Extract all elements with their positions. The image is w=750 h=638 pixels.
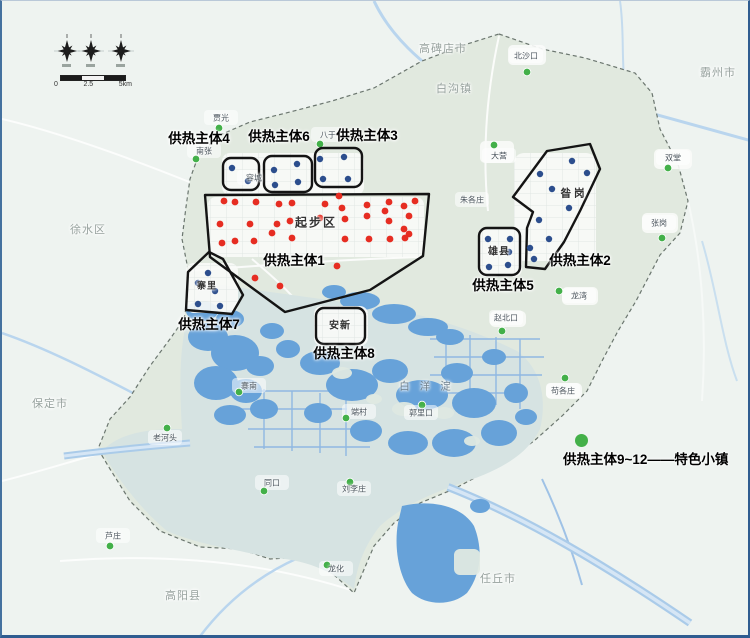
blue-heat-source-dot xyxy=(320,176,326,182)
blue-heat-source-dot xyxy=(569,158,575,164)
place-patch xyxy=(656,150,690,165)
red-heat-source-dot xyxy=(401,226,408,233)
red-heat-source-dot xyxy=(406,213,413,220)
red-heat-source-dot xyxy=(253,199,260,206)
scale-segment xyxy=(82,76,103,80)
blue-heat-source-dot xyxy=(229,165,235,171)
blue-heat-source-dot xyxy=(531,256,537,262)
blue-heat-source-dot xyxy=(549,186,555,192)
blue-heat-source-dot xyxy=(536,217,542,223)
blue-heat-source-dot xyxy=(584,170,590,176)
scale-label-25: 2.5 xyxy=(83,81,93,88)
blue-heat-source-dot xyxy=(507,236,513,242)
red-heat-source-dot xyxy=(339,205,346,212)
red-heat-source-dot xyxy=(274,221,281,228)
compass-block: 0 2.5 5km xyxy=(46,29,166,93)
blue-heat-source-dot xyxy=(537,171,543,177)
town-green-dot xyxy=(342,414,350,422)
blue-heat-source-dot xyxy=(195,280,201,286)
blue-heat-source-dot xyxy=(546,236,552,242)
place-patch xyxy=(148,430,182,445)
red-heat-source-dot xyxy=(232,238,239,245)
red-heat-source-dot xyxy=(402,235,409,242)
scale-segment xyxy=(61,76,82,80)
town-green-dot xyxy=(658,234,666,242)
place-patch xyxy=(562,288,596,303)
town-green-dot xyxy=(561,374,569,382)
red-heat-source-dot xyxy=(277,283,284,290)
blue-heat-source-dot xyxy=(245,178,251,184)
red-heat-source-dot xyxy=(221,198,228,205)
blue-heat-source-dot xyxy=(217,303,223,309)
red-heat-source-dot xyxy=(252,275,259,282)
place-patch xyxy=(482,148,516,163)
place-patch xyxy=(237,170,271,185)
place-patch xyxy=(455,192,489,207)
red-heat-source-dot xyxy=(276,201,283,208)
town-green-dot xyxy=(106,542,114,550)
red-heat-source-dot xyxy=(342,236,349,243)
red-heat-source-dot xyxy=(317,215,324,222)
red-heat-source-dot xyxy=(322,201,329,208)
red-heat-source-dot xyxy=(289,200,296,207)
red-heat-source-dot xyxy=(387,236,394,243)
scale-labels: 0 2.5 5km xyxy=(54,81,132,88)
red-heat-source-dot xyxy=(412,198,419,205)
town-green-dot xyxy=(260,487,268,495)
town-green-dot xyxy=(664,164,672,172)
red-heat-source-dot xyxy=(364,213,371,220)
place-patch xyxy=(546,383,580,398)
legend: 供热主体9~12——特色小镇 xyxy=(563,448,728,469)
blue-heat-source-dot xyxy=(506,249,512,255)
blue-heat-source-dot xyxy=(212,288,218,294)
blue-heat-source-dot xyxy=(294,161,300,167)
xiongan-heating-map-figure: 贾光北沙口南张八于容城大营双堂朱各庄张岗龙湾赵北口苟各庄端村郭里口寨南同口刘李庄… xyxy=(0,0,750,638)
town-green-dot xyxy=(418,401,426,409)
town-green-dot xyxy=(215,124,223,132)
town-green-dot xyxy=(523,68,531,76)
red-heat-source-dot xyxy=(287,218,294,225)
red-heat-source-dot xyxy=(269,230,276,237)
town-green-dot xyxy=(323,561,331,569)
town-green-dot xyxy=(316,140,324,148)
red-heat-source-dot xyxy=(382,208,389,215)
blue-heat-source-dot xyxy=(486,264,492,270)
red-heat-source-dot xyxy=(401,203,408,210)
place-patch xyxy=(255,475,289,490)
town-green-dot xyxy=(555,287,563,295)
blue-heat-source-dot xyxy=(295,179,301,185)
red-heat-source-dot xyxy=(386,218,393,225)
red-heat-source-dot xyxy=(251,238,258,245)
town-green-dot xyxy=(163,424,171,432)
place-patch xyxy=(187,143,221,158)
red-heat-source-dot xyxy=(219,240,226,247)
scale-label-5: 5km xyxy=(119,81,132,88)
legend-green-dot xyxy=(575,434,588,447)
blue-heat-source-dot xyxy=(527,245,533,251)
red-heat-source-dot xyxy=(386,199,393,206)
red-heat-source-dot xyxy=(232,199,239,206)
place-patch xyxy=(642,215,676,230)
place-patch xyxy=(509,48,543,63)
blue-heat-source-dot xyxy=(205,270,211,276)
place-patch xyxy=(311,127,345,142)
red-heat-source-dot xyxy=(289,235,296,242)
blue-heat-source-dot xyxy=(566,205,572,211)
town-green-dot xyxy=(235,388,243,396)
red-heat-source-dot xyxy=(342,216,349,223)
red-heat-source-dot xyxy=(364,202,371,209)
blue-heat-source-dot xyxy=(505,262,511,268)
red-heat-source-dot xyxy=(217,221,224,228)
blue-heat-source-dot xyxy=(317,156,323,162)
red-heat-source-dot xyxy=(366,236,373,243)
place-patch xyxy=(489,310,523,325)
town-green-dot xyxy=(498,327,506,335)
red-heat-source-dot xyxy=(336,193,343,200)
legend-text: 供热主体9~12——特色小镇 xyxy=(563,452,728,467)
blue-heat-source-dot xyxy=(485,236,491,242)
red-heat-source-dot xyxy=(247,221,254,228)
scale-label-0: 0 xyxy=(54,81,58,88)
blue-heat-source-dot xyxy=(272,182,278,188)
place-patch xyxy=(204,110,238,125)
red-heat-source-dot xyxy=(334,263,341,270)
blue-heat-source-dot xyxy=(195,301,201,307)
blue-heat-source-dot xyxy=(271,167,277,173)
blue-heat-source-dot xyxy=(341,154,347,160)
blue-heat-source-dot xyxy=(345,176,351,182)
scale-segment xyxy=(104,76,125,80)
place-patch xyxy=(96,528,130,543)
town-green-dot xyxy=(490,141,498,149)
town-green-dot xyxy=(192,155,200,163)
map-canvas xyxy=(2,1,750,638)
town-green-dot xyxy=(346,478,354,486)
